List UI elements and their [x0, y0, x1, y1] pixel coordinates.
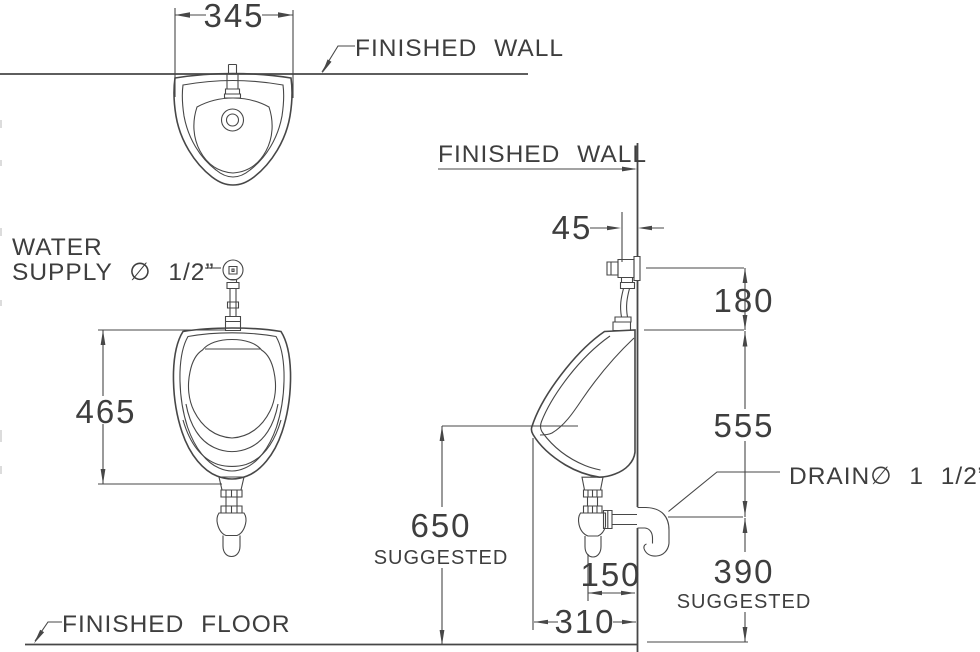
- side-valve-knob: [607, 262, 618, 275]
- side-trap-arm: [612, 515, 637, 525]
- side-valve-nut: [621, 283, 635, 289]
- dim-650-text: 650: [410, 507, 471, 544]
- side-trap-cap: [585, 536, 601, 557]
- urinal-installation-diagram: 345 FINISHED WALL WATER SUPPLY ∅ 1/2” 46…: [0, 0, 980, 652]
- plan-inlet-spud: [225, 74, 241, 98]
- wall-elbow-outer: [638, 508, 670, 544]
- dim-180-text: 180: [713, 282, 774, 319]
- front-rim-contour: [180, 333, 284, 471]
- front-supply-ball: [223, 260, 243, 280]
- side-bowl-inner-edge: [540, 338, 634, 435]
- side-valve-stem-flange: [622, 278, 633, 283]
- finished-floor-label: FINISHED FLOOR: [62, 611, 291, 638]
- installation-drawing-sheet: 345 FINISHED WALL WATER SUPPLY ∅ 1/2” 46…: [0, 0, 980, 652]
- finished-wall-side-label: FINISHED WALL: [438, 141, 647, 168]
- plan-spreader-outer: [222, 109, 244, 131]
- side-drain-spud: [582, 477, 603, 490]
- side-drain-ring-2: [584, 506, 603, 513]
- front-view: [173, 260, 290, 557]
- water-supply-label-line2: SUPPLY ∅ 1/2”: [12, 259, 215, 286]
- plan-outer-contour: [174, 74, 292, 186]
- annotations: 345 FINISHED WALL WATER SUPPLY ∅ 1/2” 46…: [12, 0, 980, 640]
- wall-elbow-inner: [638, 528, 653, 544]
- side-trap-tee: [579, 513, 606, 536]
- dim-45-text: 45: [552, 209, 593, 246]
- water-supply-label-line1: WATER: [12, 234, 103, 261]
- finished-wall-top-label: FINISHED WALL: [355, 35, 564, 62]
- dim-555-text: 555: [713, 407, 774, 444]
- front-drain-ring-1: [221, 490, 242, 497]
- front-bowl-opening: [188, 340, 275, 439]
- dim-650-note: SUGGESTED: [374, 547, 509, 569]
- front-supply-collar: [228, 302, 239, 308]
- dim-465-text: 465: [75, 393, 136, 430]
- side-valve-body: [618, 260, 634, 278]
- dim-345-text: 345: [203, 0, 264, 34]
- front-trap-cap: [223, 536, 240, 557]
- plan-spreader-inner: [227, 114, 239, 126]
- plan-supply-stub: [229, 65, 237, 74]
- side-valve-wall-flange: [634, 257, 640, 281]
- front-supply-ball-core: [229, 267, 237, 275]
- dim-310-text: 310: [554, 603, 615, 640]
- front-bowl-lip-arc-1: [186, 404, 278, 452]
- leader-drain: [669, 472, 781, 512]
- side-rim-inner-edge: [540, 336, 610, 470]
- leader-finished-wall-top: [322, 46, 355, 72]
- side-inlet-spud: [613, 317, 631, 331]
- plan-view: [174, 65, 292, 186]
- dim-390-note: SUGGESTED: [677, 591, 812, 613]
- side-drain-pipe: [588, 497, 598, 506]
- front-drain-pipe: [226, 497, 237, 506]
- side-view: [531, 257, 669, 558]
- side-drain-ring-1: [584, 490, 603, 497]
- front-supply-neck: [227, 280, 239, 289]
- dim-150-text: 150: [580, 556, 641, 593]
- leader-finished-floor: [35, 622, 62, 641]
- drain-label: DRAIN∅ 1 1/2”: [789, 463, 980, 490]
- front-bowl-lip-arc-2: [183, 420, 281, 466]
- front-trap-body: [217, 513, 246, 536]
- wall-elbow-open-end: [644, 544, 669, 557]
- front-drain-ring-2: [221, 506, 242, 513]
- dim-390-text: 390: [713, 553, 774, 590]
- side-flush-pipe: [621, 289, 630, 318]
